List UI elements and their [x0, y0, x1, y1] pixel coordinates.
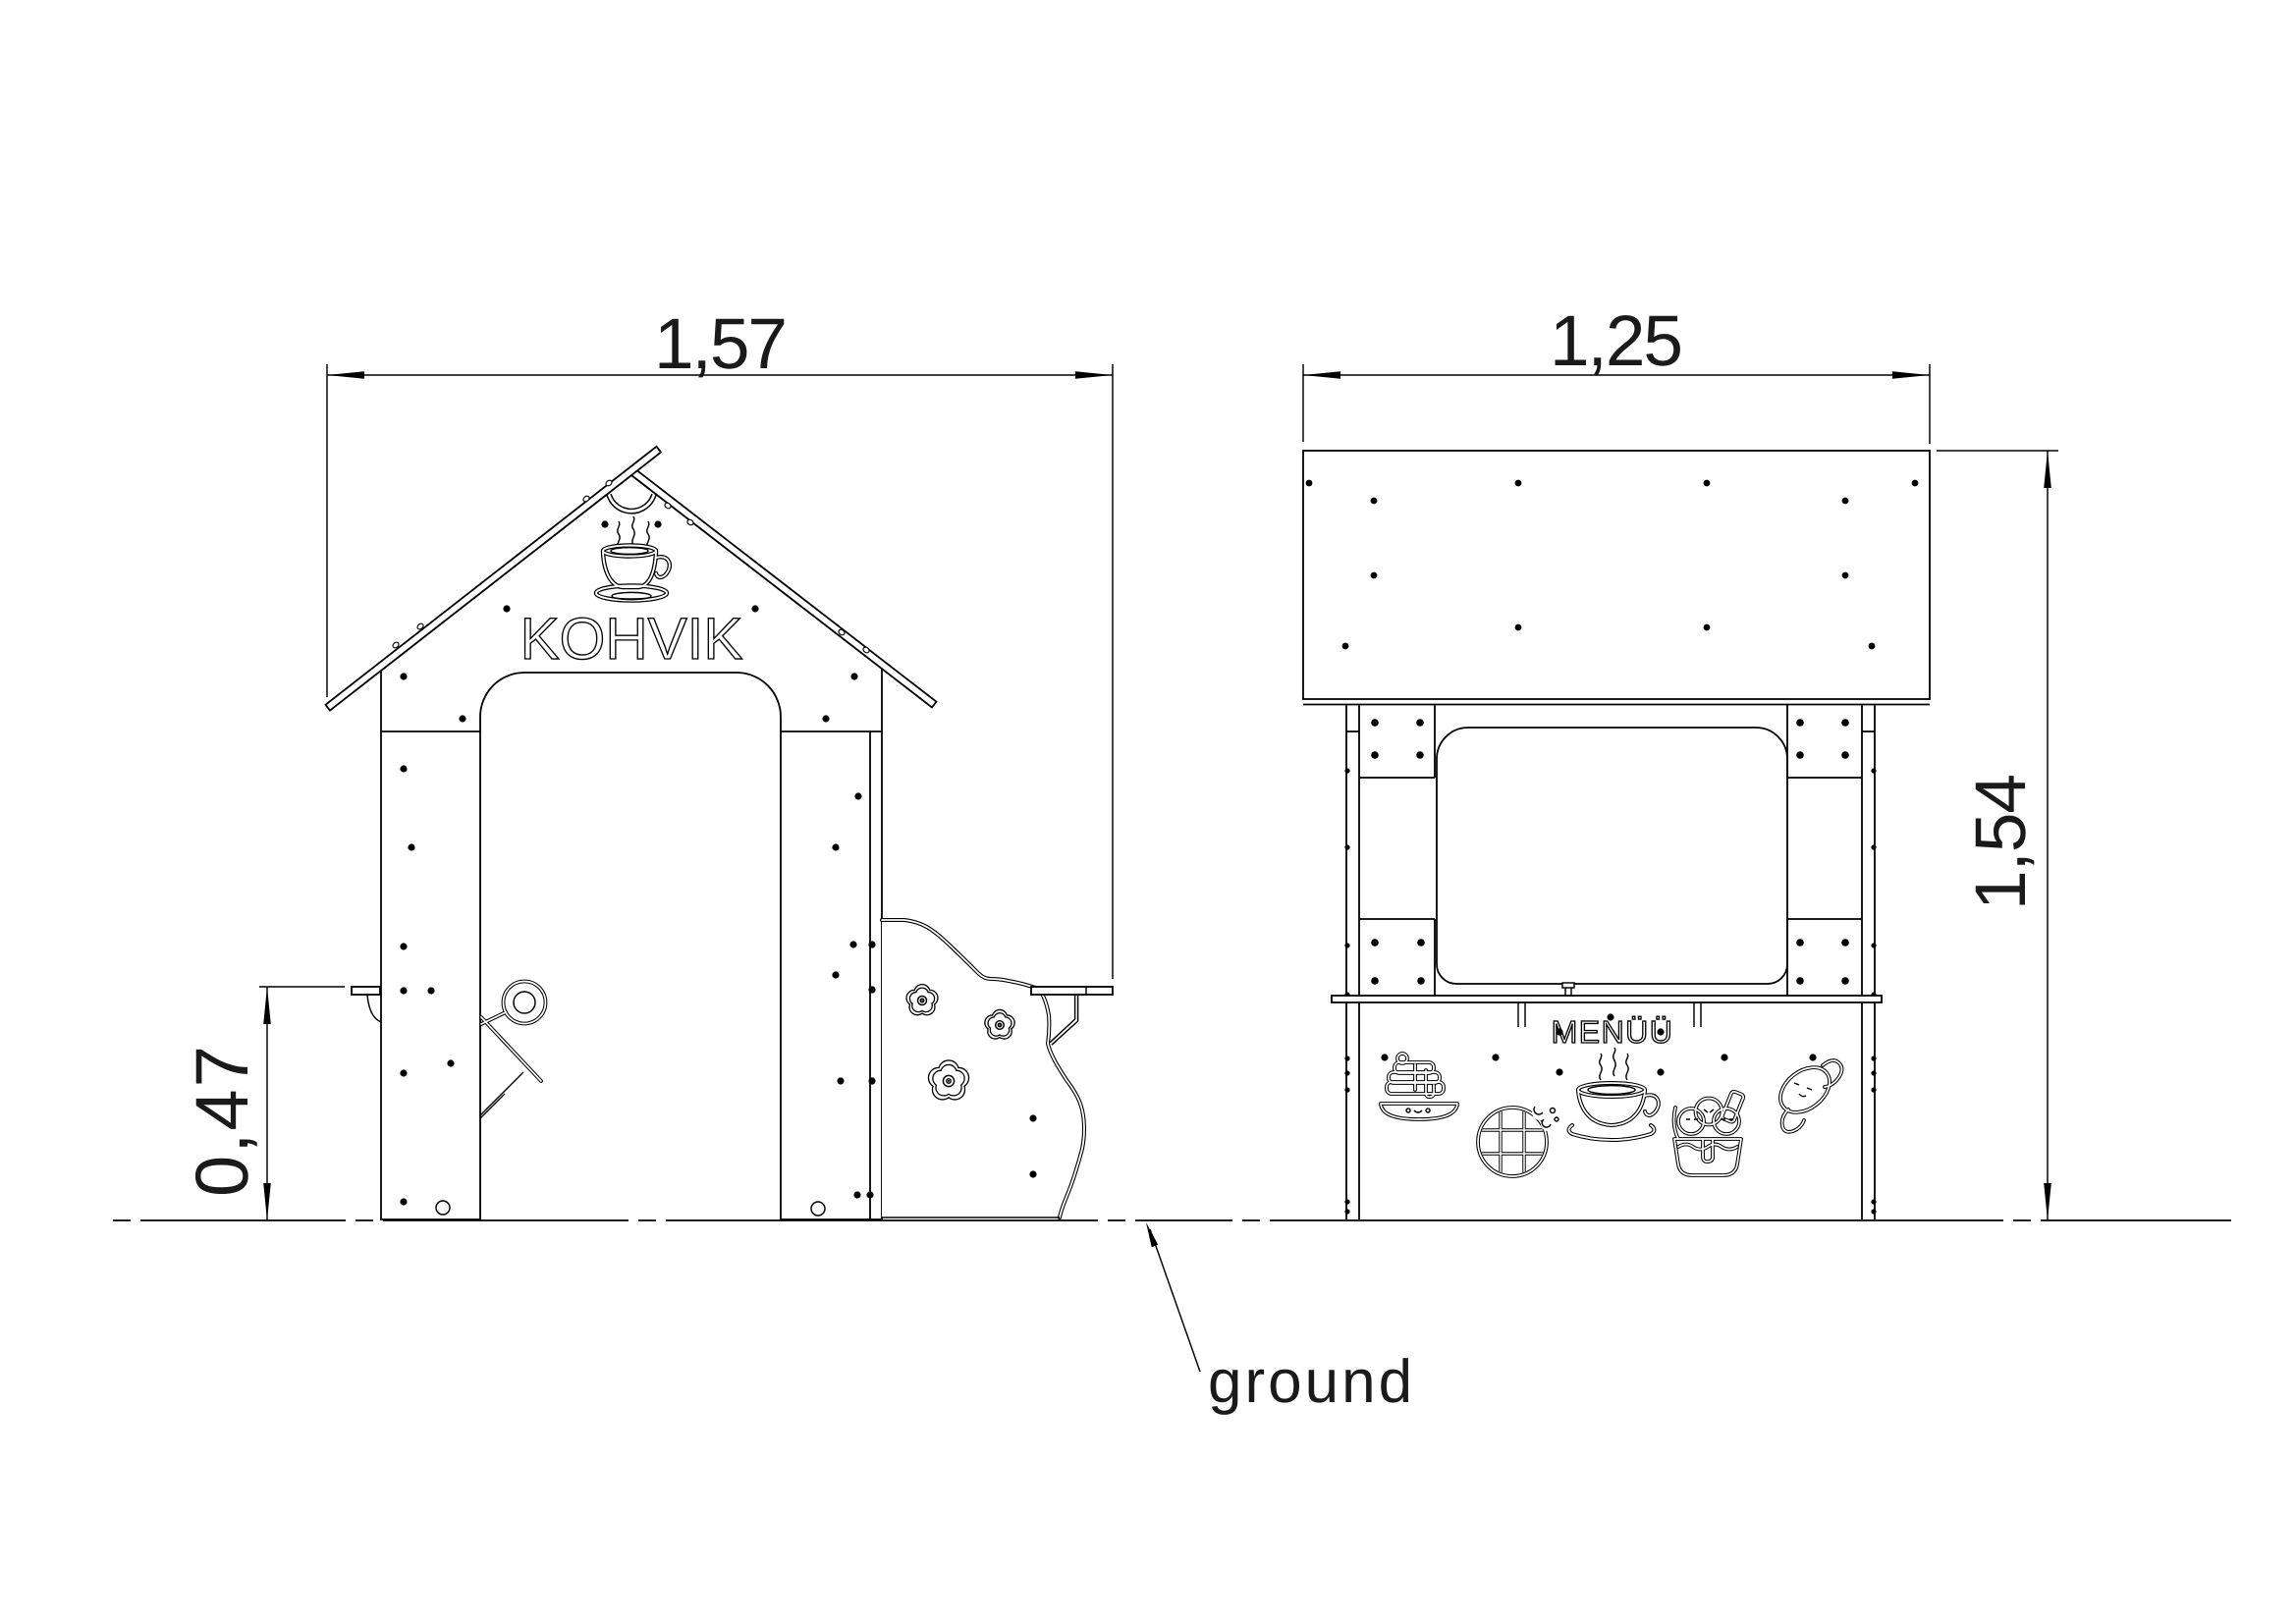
svg-text:KOHVIK: KOHVIK: [520, 606, 743, 672]
svg-text:1,57: 1,57: [654, 304, 786, 384]
svg-text:0,47: 0,47: [181, 1044, 264, 1197]
svg-text:ground: ground: [1208, 1348, 1415, 1416]
svg-text:1,25: 1,25: [1550, 301, 1681, 381]
svg-text:1,54: 1,54: [1961, 775, 2041, 910]
